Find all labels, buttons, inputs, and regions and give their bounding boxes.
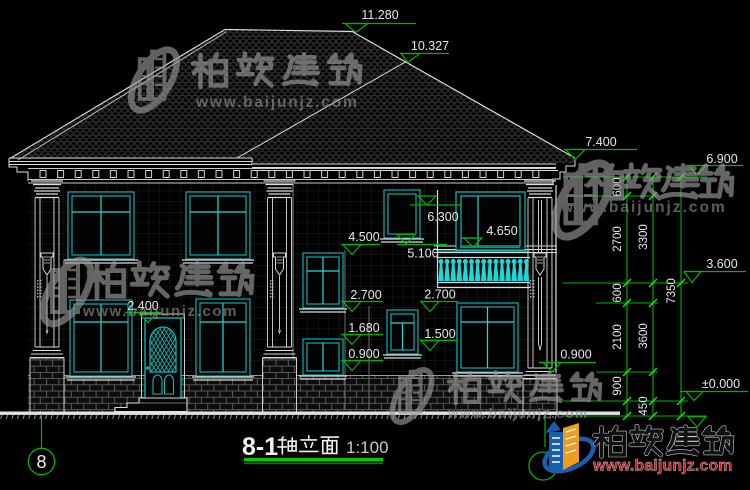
- svg-text:www.baijunjz.com: www.baijunjz.com: [195, 94, 359, 111]
- svg-text:900: 900: [612, 376, 624, 395]
- svg-text:3600: 3600: [638, 323, 650, 349]
- svg-text:0.900: 0.900: [348, 347, 379, 361]
- svg-text:1:100: 1:100: [346, 438, 389, 457]
- svg-text:8: 8: [36, 452, 46, 472]
- svg-text:1.500: 1.500: [424, 327, 455, 341]
- svg-text:2700: 2700: [612, 226, 624, 252]
- svg-text:±0.000: ±0.000: [702, 377, 740, 391]
- svg-text:www.baijunjz.com: www.baijunjz.com: [82, 303, 238, 320]
- svg-text:7350: 7350: [666, 278, 678, 304]
- svg-text:4.650: 4.650: [486, 224, 517, 238]
- svg-text:3300: 3300: [638, 224, 650, 250]
- svg-text:5.100: 5.100: [407, 247, 438, 261]
- svg-text:8-1: 8-1: [242, 433, 278, 461]
- svg-text:10.327: 10.327: [411, 39, 449, 53]
- svg-text:www.baijunjz.com: www.baijunjz.com: [592, 458, 733, 475]
- svg-text:7.400: 7.400: [585, 135, 616, 149]
- svg-text:3.600: 3.600: [706, 257, 737, 271]
- svg-text:2.700: 2.700: [350, 288, 381, 302]
- svg-text:600: 600: [612, 283, 624, 302]
- svg-text:www.baijunjz.com: www.baijunjz.com: [560, 199, 727, 216]
- svg-text:2100: 2100: [612, 324, 624, 350]
- svg-text:4.500: 4.500: [348, 230, 379, 244]
- svg-text:6.300: 6.300: [427, 210, 458, 224]
- svg-text:www.baijunjz.com: www.baijunjz.com: [447, 406, 589, 421]
- svg-text:2.700: 2.700: [424, 288, 455, 302]
- svg-text:1.680: 1.680: [348, 321, 379, 335]
- svg-text:11.280: 11.280: [361, 8, 398, 22]
- svg-text:450: 450: [638, 396, 650, 415]
- svg-text:0.900: 0.900: [560, 348, 591, 362]
